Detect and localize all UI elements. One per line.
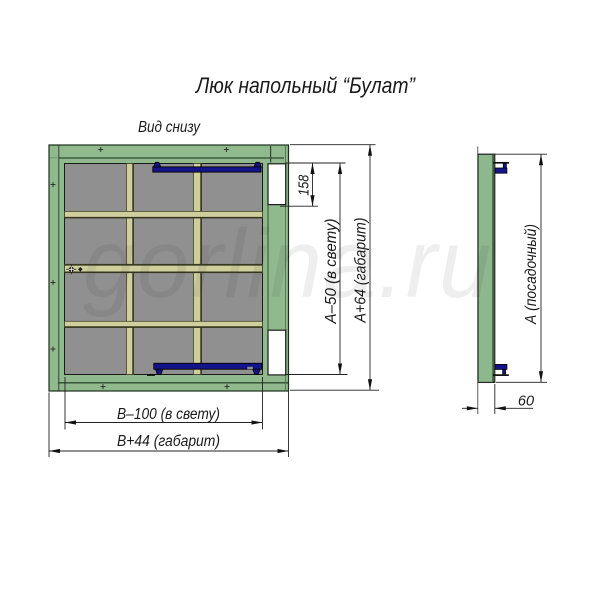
svg-text:Вид снизу: Вид снизу [138,119,201,136]
svg-text:Люк напольный “Булат”: Люк напольный “Булат” [194,73,416,98]
svg-text:158: 158 [297,175,313,196]
svg-text:В–100 (в свету): В–100 (в свету) [117,406,220,423]
svg-text:gorlina.ru: gorlina.ru [83,209,493,318]
svg-text:В+44 (габарит): В+44 (габарит) [117,433,220,450]
svg-text:60: 60 [518,394,534,410]
svg-text:А (посадочный): А (посадочный) [523,224,540,325]
